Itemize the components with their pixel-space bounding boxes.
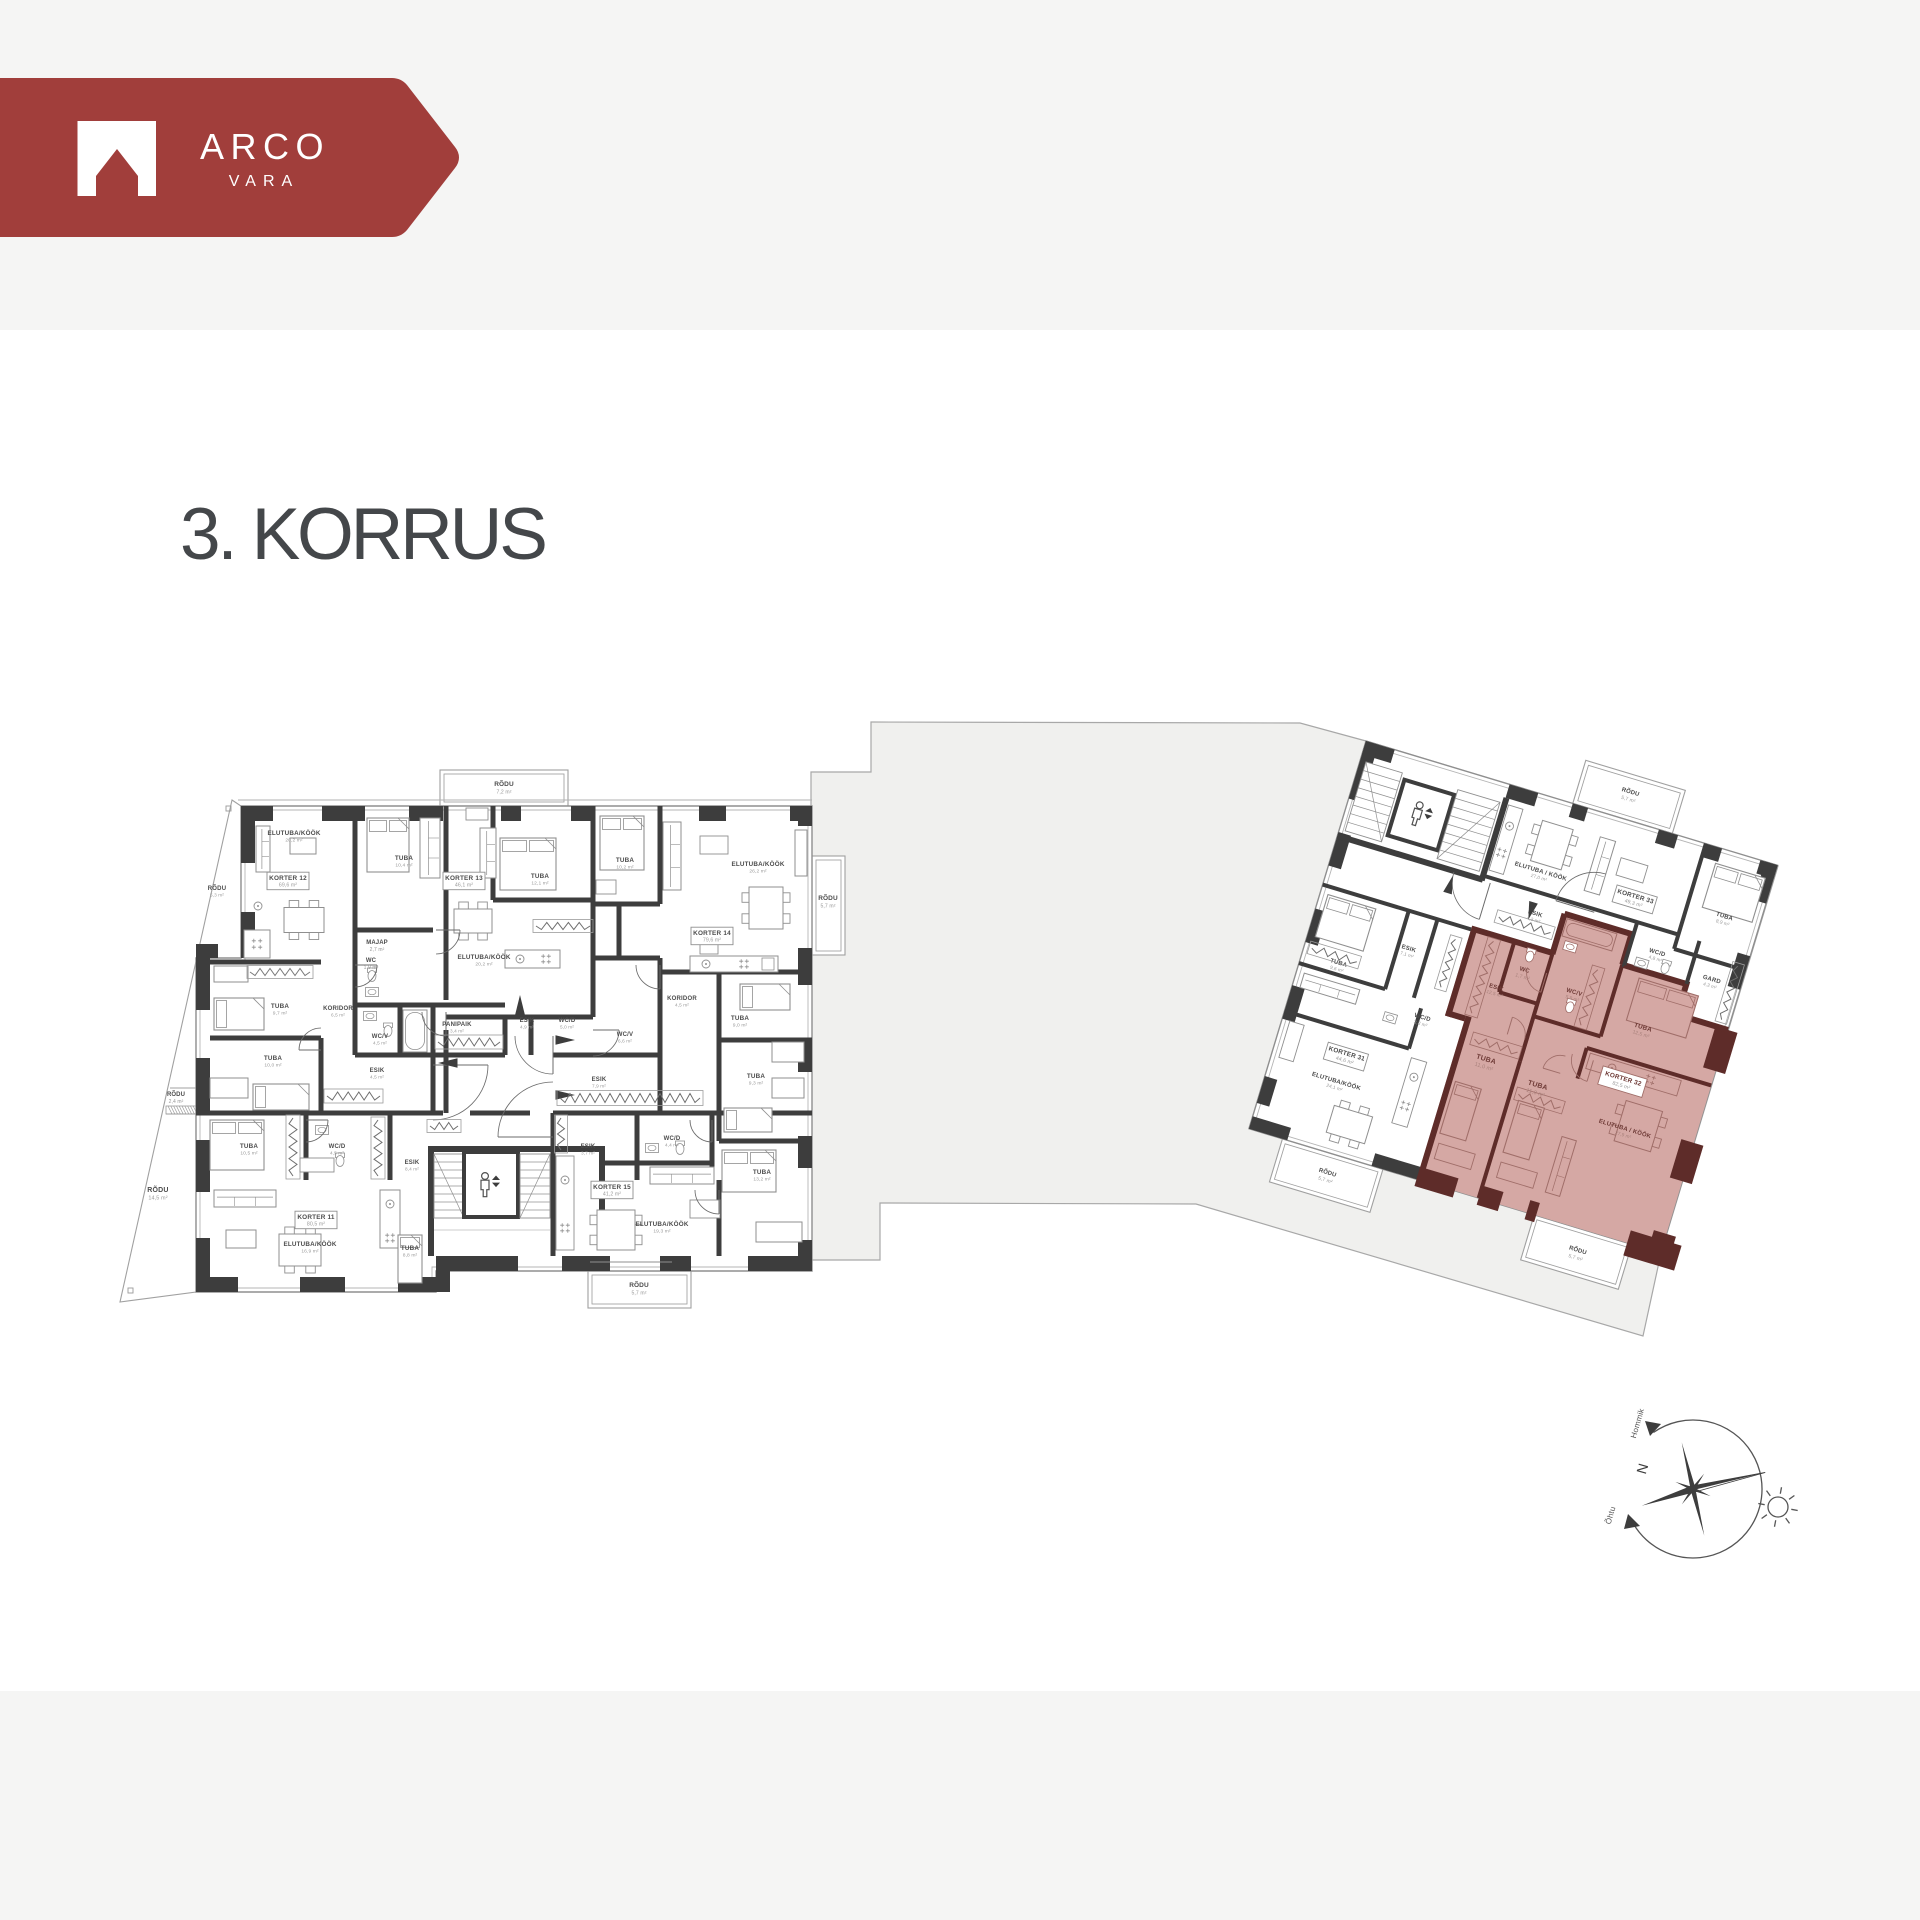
svg-text:KORTER 12: KORTER 12 [269, 875, 307, 882]
svg-text:41,2 m²: 41,2 m² [603, 1192, 621, 1198]
svg-text:7,2 m²: 7,2 m² [496, 790, 511, 796]
svg-text:KORTER 15: KORTER 15 [593, 1184, 631, 1191]
svg-text:TUBA: TUBA [240, 1143, 259, 1150]
svg-text:RÕDU: RÕDU [147, 1185, 168, 1194]
svg-text:6,6 m²: 6,6 m² [618, 1038, 632, 1043]
svg-text:79,6 m²: 79,6 m² [703, 938, 721, 944]
svg-text:TUBA: TUBA [401, 1245, 420, 1252]
svg-text:WC/V: WC/V [617, 1032, 633, 1038]
svg-text:KORIDOR: KORIDOR [667, 996, 697, 1002]
svg-text:10,2 m²: 10,2 m² [616, 865, 634, 871]
svg-text:10,5 m²: 10,5 m² [240, 1151, 258, 1157]
svg-text:VARA: VARA [229, 173, 299, 190]
svg-text:8,4 m²: 8,4 m² [405, 1166, 419, 1171]
svg-text:ARCO: ARCO [200, 126, 330, 167]
svg-text:WC: WC [366, 958, 377, 964]
svg-text:ELUTUBA/KÖÖK: ELUTUBA/KÖÖK [283, 1239, 336, 1248]
svg-text:ESIK: ESIK [370, 1068, 385, 1074]
svg-text:KORTER 14: KORTER 14 [693, 930, 731, 937]
svg-text:TUBA: TUBA [747, 1073, 766, 1080]
svg-text:WC/D: WC/D [559, 1018, 576, 1024]
svg-text:WC/V: WC/V [372, 1034, 388, 1040]
svg-text:6,5 m²: 6,5 m² [331, 1012, 345, 1017]
svg-text:TUBA: TUBA [753, 1169, 772, 1176]
svg-text:ESIK: ESIK [592, 1077, 607, 1083]
svg-text:4,9 m²: 4,9 m² [520, 1024, 534, 1029]
svg-text:14,5 m²: 14,5 m² [148, 1195, 167, 1201]
svg-text:RÕDU: RÕDU [629, 1280, 649, 1289]
svg-text:RÕDU: RÕDU [494, 779, 514, 788]
svg-text:TUBA: TUBA [616, 857, 635, 864]
svg-text:9,0 m²: 9,0 m² [733, 1023, 748, 1029]
svg-text:TUBA: TUBA [531, 873, 550, 880]
svg-text:5,7 m²: 5,7 m² [631, 1291, 646, 1297]
svg-text:19,3 m²: 19,3 m² [653, 1229, 671, 1235]
svg-text:9,7 m²: 9,7 m² [273, 1011, 288, 1017]
svg-text:TUBA: TUBA [264, 1055, 283, 1062]
svg-text:ELUTUBA/KÖÖK: ELUTUBA/KÖÖK [731, 859, 784, 868]
svg-text:ESIK: ESIK [520, 1018, 535, 1024]
svg-text:ELUTUBA/KÖÖK: ELUTUBA/KÖÖK [457, 952, 510, 961]
svg-text:ESIK: ESIK [405, 1160, 420, 1166]
svg-text:4,5 m²: 4,5 m² [330, 1150, 344, 1155]
svg-text:2,4 m²: 2,4 m² [169, 1099, 184, 1105]
svg-text:TUBA: TUBA [731, 1015, 750, 1022]
svg-text:KORIDOR: KORIDOR [323, 1006, 353, 1012]
svg-text:16,9 m²: 16,9 m² [301, 1249, 319, 1255]
svg-text:5,3 m²: 5,3 m² [210, 892, 224, 897]
svg-text:8,8 m²: 8,8 m² [403, 1253, 418, 1259]
svg-text:4,5 m²: 4,5 m² [370, 1074, 384, 1079]
svg-text:46,1 m²: 46,1 m² [455, 883, 473, 889]
svg-text:4,5 m²: 4,5 m² [675, 1002, 689, 1007]
svg-text:20,2 m²: 20,2 m² [285, 838, 303, 844]
svg-text:KORTER 11: KORTER 11 [297, 1214, 335, 1221]
svg-text:RÕDU: RÕDU [167, 1091, 185, 1098]
svg-text:13,2 m²: 13,2 m² [753, 1177, 771, 1183]
svg-text:5,7 m²: 5,7 m² [820, 904, 835, 910]
svg-text:20,2 m²: 20,2 m² [475, 962, 493, 968]
svg-text:4,4 m²: 4,4 m² [665, 1142, 679, 1147]
svg-text:MAJAP: MAJAP [366, 940, 388, 946]
svg-text:KORTER 13: KORTER 13 [445, 875, 483, 882]
svg-text:3. KORRUS: 3. KORRUS [180, 494, 545, 575]
svg-text:ELUTUBA/KÖÖK: ELUTUBA/KÖÖK [635, 1219, 688, 1228]
svg-text:ESIK: ESIK [581, 1144, 596, 1150]
svg-text:26,2 m²: 26,2 m² [749, 869, 767, 875]
svg-text:80,5 m²: 80,5 m² [307, 1222, 325, 1228]
svg-text:12,1 m²: 12,1 m² [531, 881, 549, 887]
svg-text:TUBA: TUBA [395, 855, 414, 862]
svg-text:1,9 m²: 1,9 m² [364, 965, 379, 971]
svg-text:5,0 m²: 5,0 m² [560, 1024, 574, 1029]
svg-text:10,4 m²: 10,4 m² [395, 863, 413, 869]
svg-text:RÕDU: RÕDU [208, 885, 226, 892]
svg-text:3,7 m²: 3,7 m² [581, 1150, 595, 1155]
svg-text:WC/D: WC/D [664, 1136, 681, 1142]
svg-text:PANIPAIK: PANIPAIK [442, 1022, 472, 1028]
svg-text:4,5 m²: 4,5 m² [373, 1040, 387, 1045]
svg-text:TUBA: TUBA [271, 1003, 290, 1010]
svg-text:9,3 m²: 9,3 m² [749, 1081, 764, 1087]
svg-text:10,0 m²: 10,0 m² [264, 1063, 282, 1069]
svg-text:7,9 m²: 7,9 m² [592, 1083, 606, 1088]
svg-text:3,4 m²: 3,4 m² [450, 1028, 464, 1033]
svg-text:69,6 m²: 69,6 m² [279, 883, 297, 889]
svg-text:ELUTUBA/KÖÖK: ELUTUBA/KÖÖK [267, 828, 320, 837]
svg-text:2,7 m²: 2,7 m² [370, 947, 385, 953]
svg-text:RÕDU: RÕDU [818, 893, 838, 902]
svg-text:WC/D: WC/D [329, 1144, 346, 1150]
